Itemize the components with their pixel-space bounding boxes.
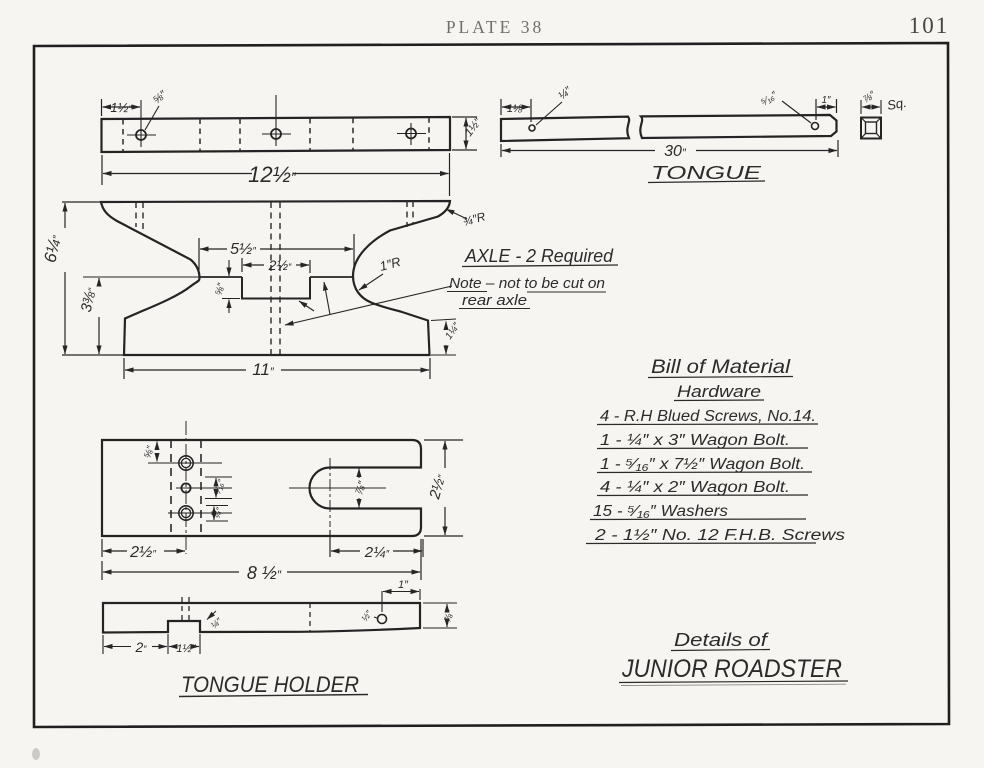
svg-text:1 - ¼″ x 3″ Wagon Bolt.: 1 - ¼″ x 3″ Wagon Bolt. — [600, 432, 790, 449]
svg-text:12½″: 12½″ — [248, 162, 297, 187]
svg-text:Hardware: Hardware — [677, 382, 761, 401]
svg-text:AXLE - 2 Required: AXLE - 2 Required — [464, 246, 614, 266]
svg-text:4 - ¼″ x 2″ Wagon Bolt.: 4 - ¼″ x 2″ Wagon Bolt. — [600, 479, 790, 496]
svg-text:2 - 1½″ No. 12 F.H.B. Screws: 2 - 1½″ No. 12 F.H.B. Screws — [594, 527, 846, 544]
svg-text:PLATE 38: PLATE 38 — [446, 17, 544, 37]
svg-text:TONGUE: TONGUE — [651, 163, 762, 183]
svg-text:15 - ⁵⁄₁₆″ Washers: 15 - ⁵⁄₁₆″ Washers — [593, 503, 728, 520]
svg-text:1″: 1″ — [398, 579, 409, 591]
svg-text:TONGUE HOLDER: TONGUE HOLDER — [181, 672, 359, 697]
svg-text:Note – not to be cut on: Note – not to be cut on — [449, 275, 605, 292]
svg-text:1″: 1″ — [821, 95, 831, 106]
svg-text:4 - R.H Blued Screws, No.14.: 4 - R.H Blued Screws, No.14. — [600, 408, 816, 425]
svg-text:101: 101 — [909, 13, 950, 38]
svg-text:1½″: 1½″ — [176, 643, 196, 655]
svg-text:rear axle: rear axle — [462, 292, 527, 309]
svg-text:2½″: 2½″ — [129, 544, 156, 561]
svg-text:JUNIOR ROADSTER: JUNIOR ROADSTER — [621, 655, 842, 683]
svg-text:Bill of Material: Bill of Material — [651, 357, 791, 378]
svg-text:Details of: Details of — [674, 630, 769, 650]
svg-text:1⅛″: 1⅛″ — [507, 103, 526, 115]
svg-text:1 - ⁵⁄₁₆″ x 7½″ Wagon Bolt.: 1 - ⁵⁄₁₆″ x 7½″ Wagon Bolt. — [600, 456, 805, 473]
svg-text:8 ½″: 8 ½″ — [247, 563, 282, 583]
